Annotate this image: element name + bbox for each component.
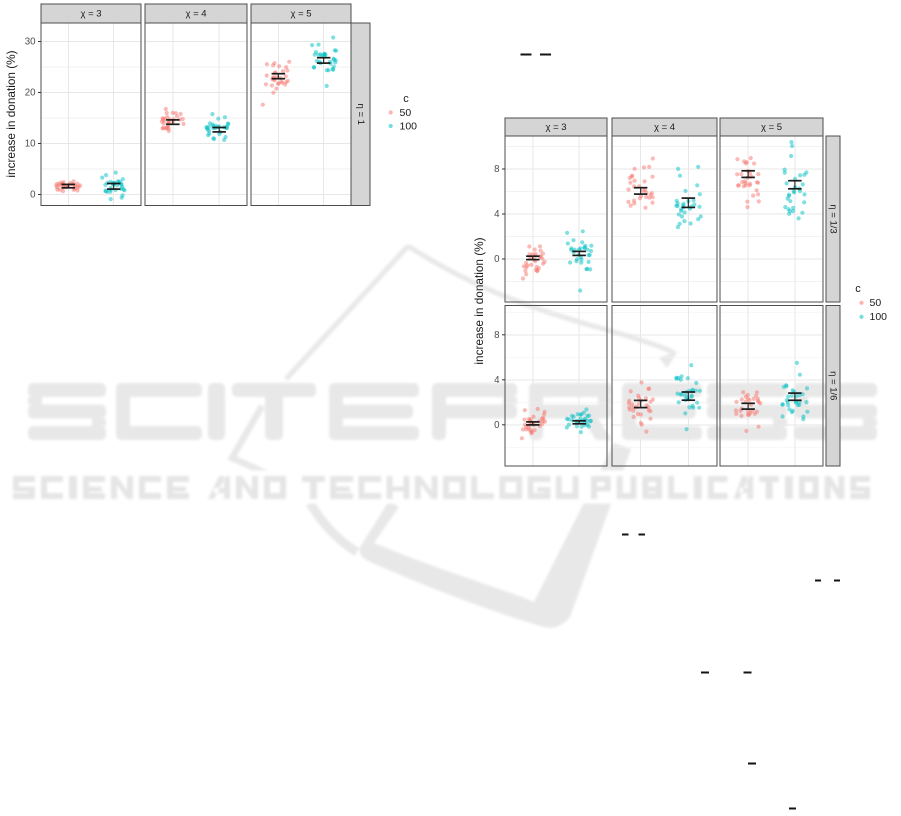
svg-text:χ = 3: χ = 3 xyxy=(80,9,101,20)
svg-text:η = 1/3: η = 1/3 xyxy=(828,204,839,233)
svg-text:χ = 3: χ = 3 xyxy=(545,122,566,133)
svg-text:50: 50 xyxy=(400,107,412,119)
svg-text:50: 50 xyxy=(870,297,882,309)
svg-text:0: 0 xyxy=(494,420,500,431)
svg-text:4: 4 xyxy=(494,209,500,220)
svg-text:8: 8 xyxy=(494,164,499,175)
svg-text:χ = 4: χ = 4 xyxy=(185,9,206,20)
svg-text:8: 8 xyxy=(494,330,499,341)
svg-text:0: 0 xyxy=(494,254,500,265)
svg-text:20: 20 xyxy=(25,88,36,99)
svg-text:χ = 4: χ = 4 xyxy=(654,122,675,133)
svg-text:η = 1/6: η = 1/6 xyxy=(828,371,839,400)
svg-text:30: 30 xyxy=(25,37,36,48)
svg-text:increase in donation (%): increase in donation (%) xyxy=(472,237,486,364)
svg-text:c: c xyxy=(403,93,409,105)
svg-text:10: 10 xyxy=(25,139,36,150)
svg-text:η = 1: η = 1 xyxy=(355,104,366,125)
svg-text:increase in donation (%): increase in donation (%) xyxy=(4,50,18,177)
svg-text:c: c xyxy=(855,283,861,295)
svg-text:100: 100 xyxy=(870,311,888,323)
svg-text:4: 4 xyxy=(494,375,500,386)
svg-text:0: 0 xyxy=(30,190,36,201)
svg-text:100: 100 xyxy=(400,120,418,132)
svg-text:χ = 5: χ = 5 xyxy=(761,122,782,133)
svg-text:χ = 5: χ = 5 xyxy=(290,9,311,20)
